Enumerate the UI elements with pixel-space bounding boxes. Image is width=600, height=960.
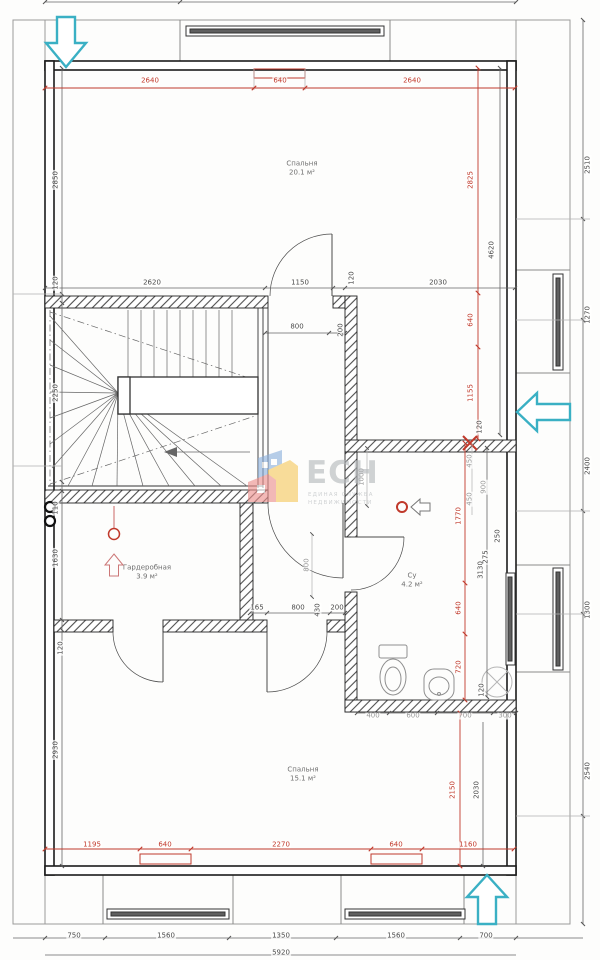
room-label: Спальня15.1 м² — [287, 765, 318, 783]
dimension-label: 640 — [272, 78, 287, 85]
dimension-label: 120 — [349, 270, 356, 285]
dimension-label: 200 — [338, 322, 345, 337]
dimension-label: 640 — [157, 842, 172, 849]
room-label: Гардеробная3.9 м² — [123, 563, 171, 581]
door-bathroom — [351, 537, 404, 590]
room-name: Спальня — [286, 159, 317, 168]
floor-plan-page: 2640640264026201150120203080020028501202… — [0, 0, 600, 960]
dimension-label: 640 — [456, 600, 463, 615]
wardrobe-light-symbol — [105, 506, 123, 576]
dimension-label: 750 — [66, 933, 81, 940]
entry-arrow-up-icon — [467, 875, 507, 924]
door-bedroom-bottom — [267, 632, 327, 692]
toilet — [379, 645, 407, 695]
dimension-label: 1155 — [468, 383, 475, 403]
room-name: Спальня — [287, 765, 318, 774]
dimension-label: 1270 — [585, 305, 592, 325]
dimension-label: 450 — [467, 453, 474, 468]
dimension-label: 430 — [315, 602, 322, 617]
dimension-label: 1160 — [458, 842, 478, 849]
window-right-upper — [553, 274, 563, 370]
dimension-label: 120 — [479, 682, 486, 697]
dimension-label: 1150 — [290, 280, 310, 287]
entry-arrow-left-icon — [517, 393, 570, 431]
dimension-label: 2930 — [53, 740, 60, 760]
window-top-dormer — [186, 26, 384, 36]
dimension-label: 1630 — [53, 548, 60, 568]
dimension-label: 450 — [467, 491, 474, 506]
dimension-label: 1300 — [585, 600, 592, 620]
room-area: 3.9 м² — [123, 572, 171, 581]
bathroom-socket-symbol — [397, 499, 430, 515]
dimension-label: 640 — [468, 312, 475, 327]
dimension-label: 2400 — [585, 456, 592, 476]
dimension-label: 2250 — [53, 383, 60, 403]
window-right-lower — [506, 568, 563, 670]
entry-arrow-down-icon — [46, 17, 86, 67]
dimension-label: 110 — [53, 500, 60, 515]
logo-tagline-line2: НЕДВИЖИМОСТИ — [308, 500, 373, 506]
dimension-label: 640 — [388, 842, 403, 849]
dimension-label: 1195 — [82, 842, 102, 849]
dimension-label: 720 — [456, 659, 463, 674]
stair-direction-arrow — [164, 447, 250, 457]
logo-tagline-line1: ЕДИНАЯ СЛУЖБА — [308, 492, 374, 498]
dimension-label: 1770 — [456, 506, 463, 526]
watermark-logo: ЕСН ЕДИНАЯ СЛУЖБА НЕДВИЖИМОСТИ — [246, 444, 396, 510]
dimension-label: 2510 — [585, 155, 592, 175]
dimension-label: 800 — [289, 324, 304, 331]
dimension-label: 120 — [477, 419, 484, 434]
dimension-label: 2825 — [468, 170, 475, 190]
room-name: Су — [401, 571, 422, 580]
room-area: 15.1 м² — [287, 774, 318, 783]
door-bedroom-top — [270, 234, 332, 296]
dimension-label: 275 — [483, 549, 490, 564]
room-area: 20.1 м² — [286, 168, 317, 177]
window-bottom-left — [107, 909, 229, 919]
dimension-label: 900 — [481, 479, 488, 494]
dimension-label: 2540 — [585, 761, 592, 781]
dimension-label: 5920 — [271, 950, 291, 957]
dimension-label: 2030 — [474, 780, 481, 800]
dimension-label: 2640 — [402, 78, 422, 85]
dimension-label: 2620 — [142, 280, 162, 287]
dimension-label: 200 — [329, 605, 344, 612]
dimension-label: 700 — [478, 933, 493, 940]
dimension-label: 2850 — [53, 170, 60, 190]
room-label: Су4.2 м² — [401, 571, 422, 589]
logo-abbreviation: ЕСН — [306, 458, 379, 489]
dimension-label: 120 — [58, 640, 65, 655]
bathroom-fixtures — [379, 645, 512, 700]
dimension-label: 1560 — [156, 933, 176, 940]
dimension-label: 2150 — [450, 780, 457, 800]
logo-buildings-icon — [246, 444, 304, 506]
bidet — [424, 669, 454, 700]
dimension-label: 800 — [304, 557, 311, 572]
dimension-label: 600 — [405, 713, 420, 720]
room-name: Гардеробная — [123, 563, 171, 572]
dimension-label: 1560 — [386, 933, 406, 940]
room-area: 4.2 м² — [401, 580, 422, 589]
door-wardrobe — [113, 632, 163, 682]
room-label: Спальня20.1 м² — [286, 159, 317, 177]
dimension-label: 165 — [249, 605, 264, 612]
dimension-label: 700 — [457, 713, 472, 720]
dimension-label: 2270 — [271, 842, 291, 849]
dimension-label: 120 — [53, 275, 60, 290]
window-bottom-right — [345, 909, 465, 919]
dimension-label: 250 — [495, 528, 502, 543]
dimension-label: 2640 — [140, 78, 160, 85]
dimension-label: 400 — [365, 713, 380, 720]
dimension-label: 300 — [497, 713, 512, 720]
dimension-label: 2030 — [428, 280, 448, 287]
dimension-label: 800 — [290, 605, 305, 612]
dimension-label: 1350 — [271, 933, 291, 940]
staircase — [48, 308, 263, 488]
dimension-label: 4620 — [489, 240, 496, 260]
